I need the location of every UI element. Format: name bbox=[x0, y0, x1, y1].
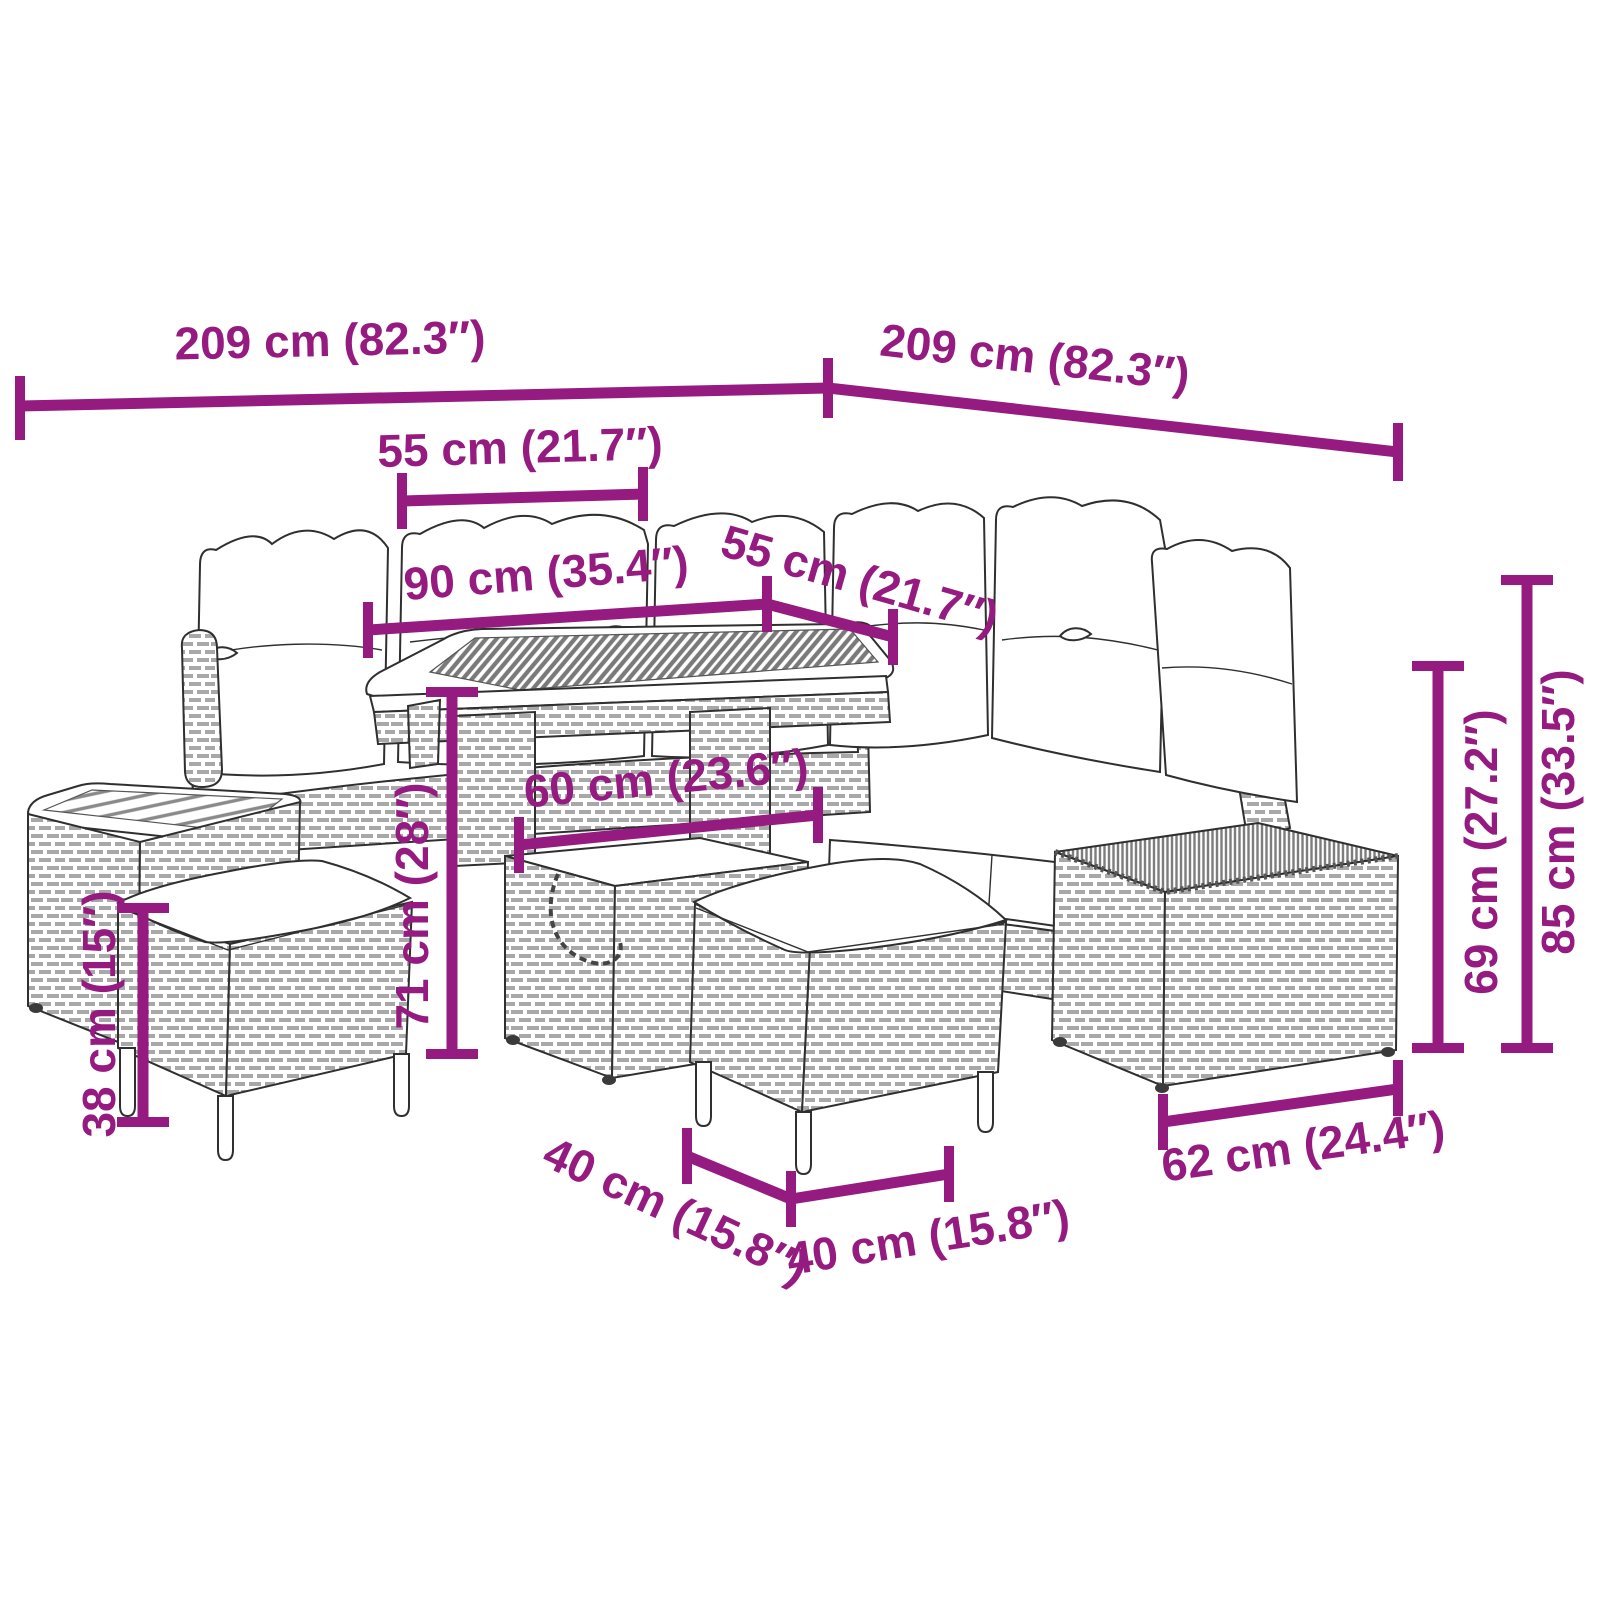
dining-table-base-front bbox=[505, 856, 615, 1078]
stool-leg bbox=[696, 1062, 711, 1126]
dimension-label: 69 cm (27.2″) bbox=[1455, 709, 1507, 994]
dimension-label: 85 cm (33.5″) bbox=[1532, 669, 1584, 954]
dimension-stool-depth: 40 cm (15.8″) bbox=[536, 1126, 817, 1294]
dimension-overall-height: 85 cm (33.5″) bbox=[1501, 580, 1584, 1048]
dimension-label: 209 cm (82.3″) bbox=[174, 310, 486, 369]
dimension-label: 209 cm (82.3″) bbox=[878, 314, 1193, 401]
stool-leg bbox=[394, 1054, 409, 1116]
furniture-foot bbox=[1053, 1037, 1067, 1047]
furniture-foot bbox=[29, 1003, 43, 1013]
stool-center bbox=[690, 859, 1006, 1174]
dimension-line bbox=[791, 1174, 949, 1199]
stool-leg bbox=[218, 1096, 233, 1160]
product-dimension-diagram: 209 cm (82.3″) 209 cm (82.3″) 55 cm (21.… bbox=[0, 0, 1600, 1600]
dimension-stool-width: 40 cm (15.8″) bbox=[783, 1146, 1073, 1285]
back-cushion bbox=[1152, 540, 1297, 802]
dimension-line bbox=[687, 1156, 791, 1199]
dining-table-support bbox=[408, 700, 440, 768]
sofa-left-arm-post bbox=[182, 630, 222, 787]
ottoman bbox=[1052, 823, 1398, 1093]
dimension-overall-width-left: 209 cm (82.3″) bbox=[20, 310, 828, 440]
dimension-line bbox=[402, 494, 643, 501]
stool-leg bbox=[978, 1072, 993, 1132]
dimension-label: 40 cm (15.8″) bbox=[536, 1126, 817, 1294]
furniture-foot bbox=[1381, 1047, 1395, 1057]
dimension-overall-width-right: 209 cm (82.3″) bbox=[828, 314, 1398, 481]
dimension-seat-back-height: 69 cm (27.2″) bbox=[1412, 666, 1507, 1048]
stool-leg bbox=[796, 1112, 811, 1174]
furniture-foot bbox=[1155, 1083, 1169, 1093]
dimension-seat-section-top: 55 cm (21.7″) bbox=[377, 417, 664, 529]
dimension-label: 38 cm (15″) bbox=[73, 890, 125, 1137]
furniture-foot bbox=[602, 1075, 616, 1085]
dimension-line bbox=[828, 388, 1398, 452]
dimension-label: 71 cm (28″) bbox=[386, 782, 438, 1029]
furniture-foot bbox=[506, 1035, 520, 1045]
dimension-label: 40 cm (15.8″) bbox=[783, 1189, 1073, 1285]
dimension-label: 55 cm (21.7″) bbox=[377, 417, 664, 477]
dimension-line bbox=[20, 388, 828, 406]
ottoman-right-face bbox=[1163, 856, 1398, 1086]
